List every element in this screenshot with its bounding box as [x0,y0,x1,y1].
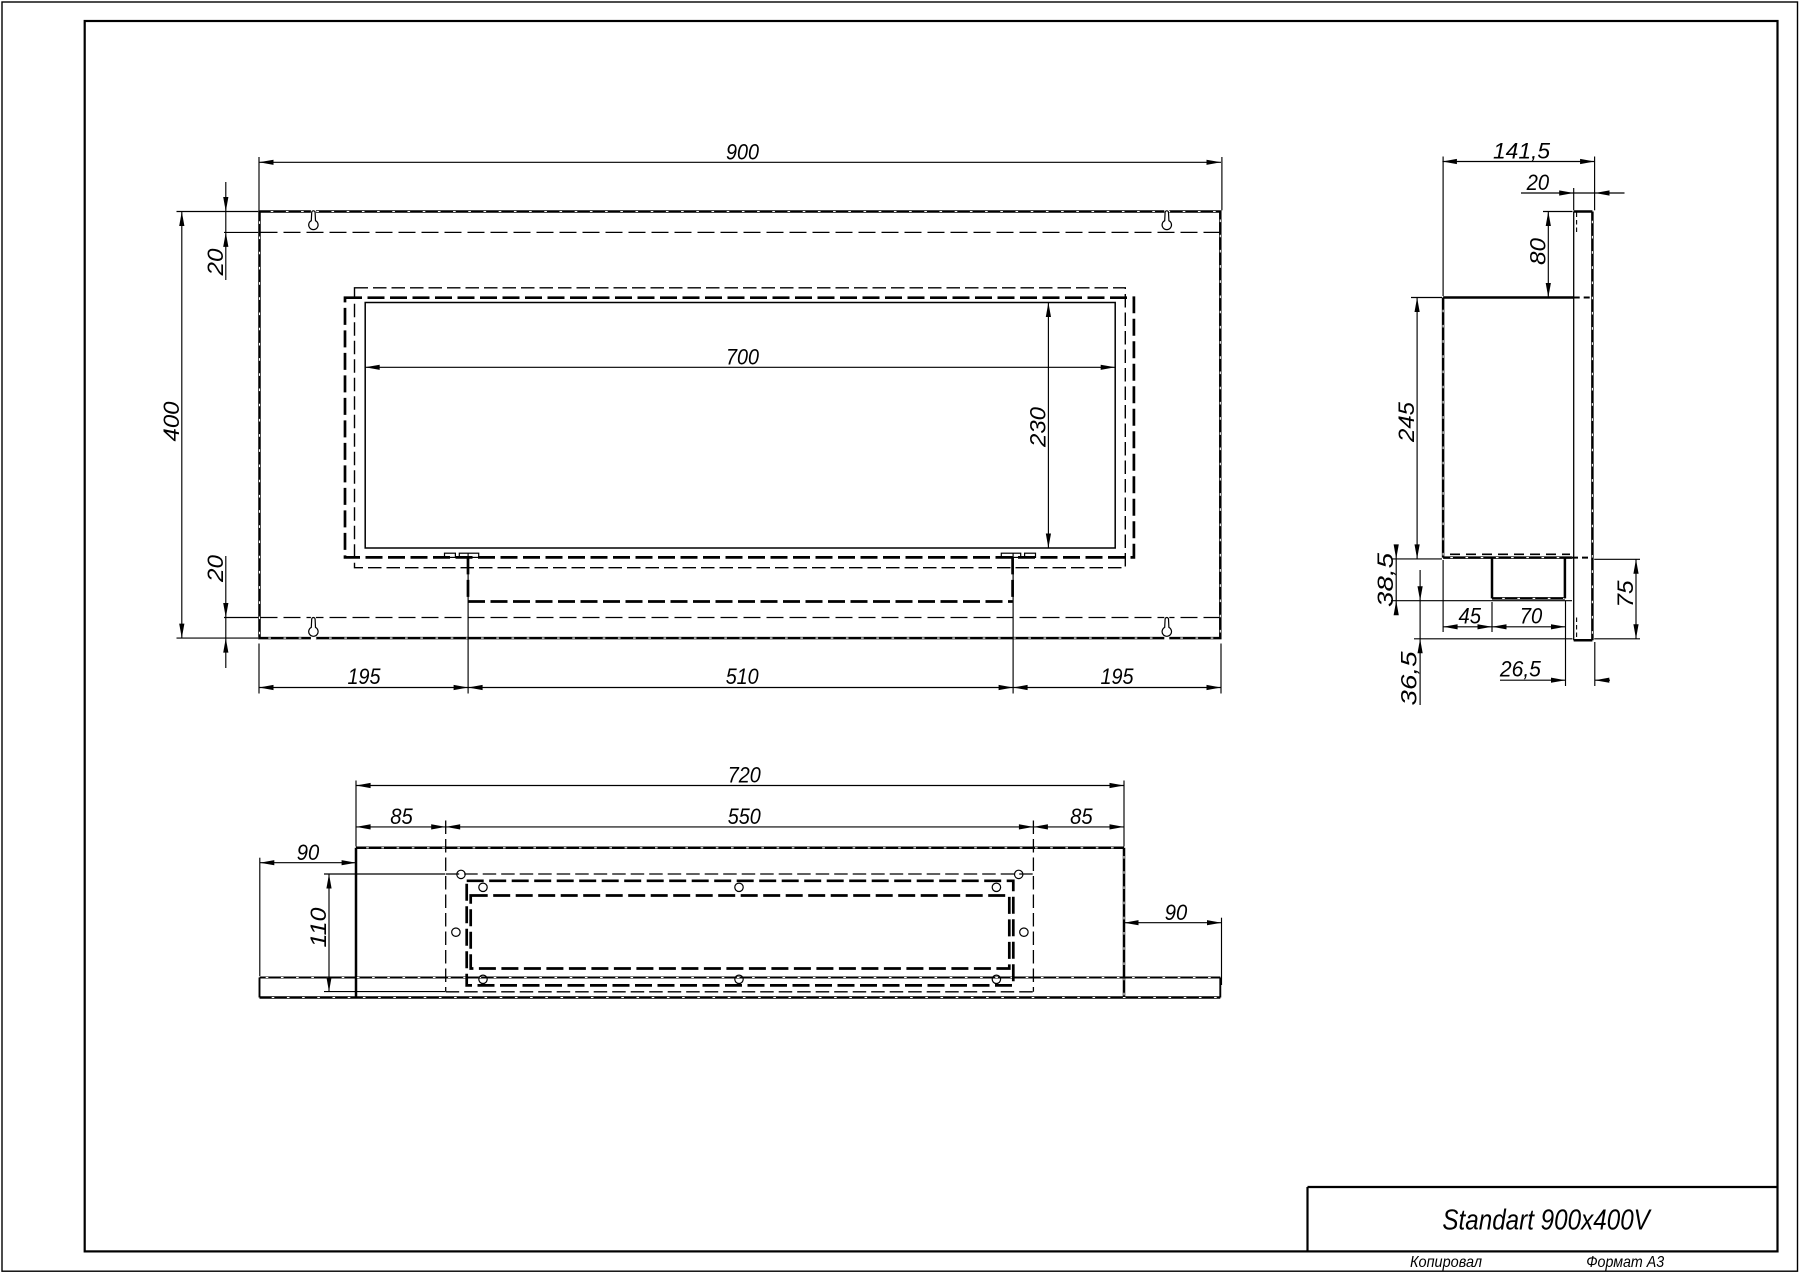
svg-text:90: 90 [297,840,320,865]
svg-text:36,5: 36,5 [1397,651,1422,706]
svg-text:26,5: 26,5 [1499,657,1542,682]
svg-text:700: 700 [726,344,760,369]
svg-text:720: 720 [728,763,762,788]
svg-text:38,5: 38,5 [1373,552,1398,607]
svg-text:Копировал: Копировал [1410,1254,1482,1271]
svg-text:230: 230 [1025,406,1050,448]
svg-text:85: 85 [390,804,413,829]
svg-text:45: 45 [1459,604,1482,629]
svg-text:510: 510 [726,664,760,689]
svg-text:80: 80 [1525,237,1550,265]
svg-text:550: 550 [728,804,762,829]
svg-text:20: 20 [203,248,228,277]
svg-text:70: 70 [1520,604,1543,629]
svg-text:110: 110 [306,907,331,948]
svg-text:400: 400 [159,401,184,442]
svg-text:75: 75 [1613,580,1638,608]
svg-text:20: 20 [1526,170,1550,195]
svg-text:900: 900 [726,139,760,164]
svg-text:195: 195 [348,664,382,689]
svg-text:90: 90 [1165,900,1188,925]
svg-text:Standart 900x400V: Standart 900x400V [1442,1205,1652,1237]
svg-text:245: 245 [1394,401,1419,443]
svg-text:20: 20 [203,554,228,583]
svg-text:85: 85 [1070,804,1093,829]
svg-text:141,5: 141,5 [1493,139,1551,164]
svg-text:Формат А3: Формат А3 [1586,1254,1664,1271]
svg-text:195: 195 [1101,664,1135,689]
